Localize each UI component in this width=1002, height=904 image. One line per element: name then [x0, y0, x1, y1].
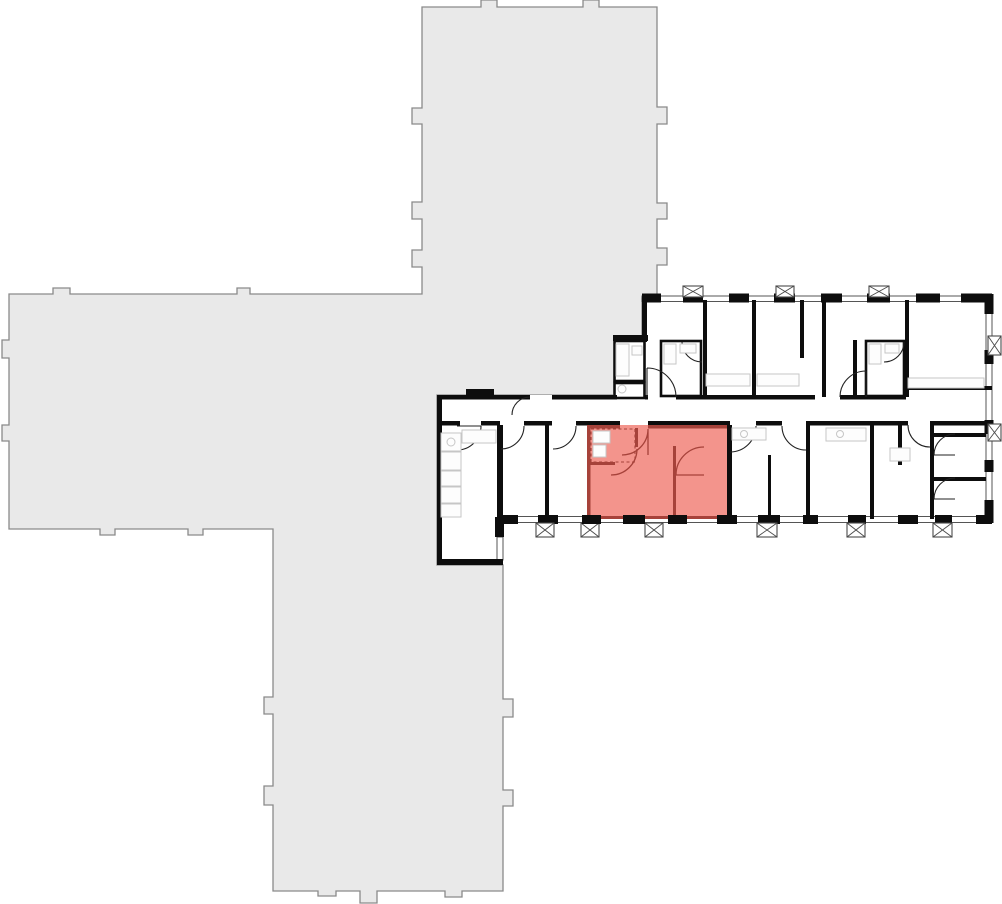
shaft-hatch-icon: [645, 523, 663, 537]
extension-east-wall: [497, 425, 503, 517]
south-window-wall: [503, 517, 992, 523]
shaft-hatch-icon: [847, 523, 865, 537]
highlighted-unit[interactable]: [582, 425, 727, 524]
shaft-hatch-icon: [776, 286, 794, 297]
shaft-hatch-icon: [988, 424, 1001, 441]
extension-east-pier: [495, 517, 504, 537]
shaft-hatch-icon: [683, 286, 703, 297]
shaft-hatch-icon: [933, 523, 952, 537]
shaft-hatch-icon: [988, 336, 1001, 355]
shaft-hatch-icon: [536, 523, 554, 537]
extension-south-wall: [437, 559, 503, 565]
shaft-hatch-icon: [869, 286, 889, 297]
shaft-hatch-icon: [581, 523, 599, 537]
east-window-wall: [986, 296, 992, 522]
extension-window: [497, 537, 503, 560]
floorplan-page: [0, 0, 1002, 904]
floorplan-canvas: [0, 0, 1002, 904]
shaft-hatch-icon: [757, 523, 777, 537]
